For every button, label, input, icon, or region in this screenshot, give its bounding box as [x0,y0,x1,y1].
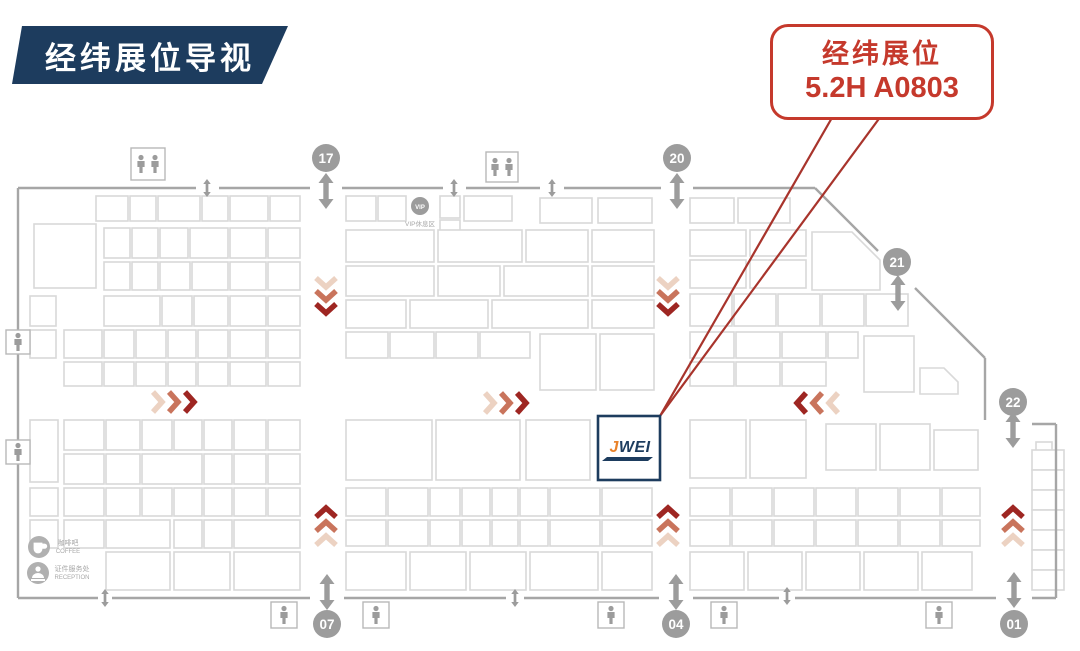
reception-icon: 证件服务处 RECEPTION [27,562,90,584]
coffee-label-zh: 咖啡吧 [58,538,79,547]
vip-lounge-label: VIP休息区 [405,219,435,228]
gate-20-label: 20 [669,151,684,166]
gate-17: 17 [312,144,340,172]
jwei-logo-underline [602,457,653,461]
svg-text:VIP: VIP [415,205,425,211]
gate-22: 22 [999,388,1027,416]
gate-04: 04 [662,610,690,638]
gate-17-label: 17 [318,151,333,166]
booth-callout: 经纬展位 5.2H A0803 [770,24,994,120]
page-title: 经纬展位导视 [45,33,255,78]
gate-21: 21 [883,248,911,276]
jwei-booth: JWEI [598,416,660,480]
coffee-label-en: COFFEE [56,549,80,555]
callout-booth-name: 经纬展位 [822,38,942,71]
reception-label-en: RECEPTION [54,575,89,581]
reception-label-zh: 证件服务处 [55,564,90,573]
floorplan-page: 17 20 21 22 07 04 01 [0,0,1080,651]
gate-01-label: 01 [1006,617,1022,632]
vip-lounge-icon: VIP VIP休息区 [405,197,435,228]
gate-07-label: 07 [319,617,334,632]
callout-booth-code: 5.2H A0803 [805,71,959,106]
gate-21-label: 21 [889,255,905,270]
gate-01: 01 [1000,610,1028,638]
svg-text:JWEI: JWEI [609,439,650,456]
page-title-banner: 经纬展位导视 [12,26,288,84]
gate-07: 07 [313,610,341,638]
gate-04-label: 04 [668,617,684,632]
gate-20: 20 [663,144,691,172]
gate-22-label: 22 [1005,395,1020,410]
jwei-logo-wei: WEI [619,439,651,456]
